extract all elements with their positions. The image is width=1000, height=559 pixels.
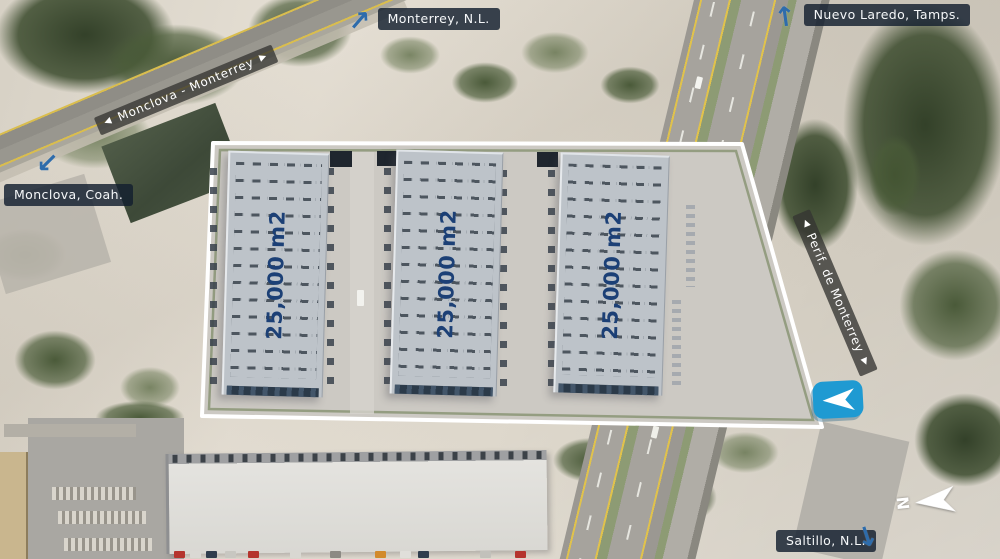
parking-row	[686, 205, 695, 287]
building-area-label: 25,000 m2	[262, 210, 290, 340]
navigation-arrow-icon	[817, 384, 858, 414]
destination-monterrey: ↗ Monterrey, N.L.	[348, 8, 500, 35]
dock-doors	[210, 168, 217, 388]
north-compass: N	[891, 476, 965, 527]
destination-monclova: Monclova, Coah.	[4, 184, 133, 206]
parking-row	[672, 300, 681, 390]
site-entrance	[330, 151, 352, 167]
triangle-right-icon: ▶	[859, 357, 870, 368]
triangle-right-icon: ▶	[258, 52, 269, 63]
aerial-site-map: 25,000 m2 25,000 m2 25,000 m2 ↗ Monterre…	[0, 0, 1000, 559]
building-area-label: 25,000 m2	[433, 209, 461, 339]
arrow-up-right-icon: ↗	[347, 7, 371, 36]
warehouse-building-2: 25,000 m2	[390, 150, 504, 397]
site-entrance	[537, 152, 558, 167]
warehouse-building-3: 25,000 m2	[553, 152, 669, 395]
destination-nuevo-laredo: ↑ Nuevo Laredo, Tamps.	[774, 4, 970, 31]
destination-label: Nuevo Laredo, Tamps.	[804, 4, 971, 26]
destination-label: Monterrey, N.L.	[378, 8, 500, 30]
building-area-label: 25,000 m2	[598, 210, 626, 340]
truck	[357, 290, 364, 306]
arrow-down-left-icon: ↙	[36, 150, 59, 177]
warehouse-building-1: 25,000 m2	[222, 151, 330, 398]
north-label: N	[893, 496, 913, 511]
site-entrance-marker	[812, 380, 864, 420]
triangle-left-icon: ◀	[103, 116, 114, 127]
central-drive	[350, 152, 374, 414]
triangle-left-icon: ◀	[800, 218, 811, 229]
arrow-up-icon: ↑	[772, 3, 798, 33]
north-arrow-icon	[914, 485, 957, 516]
site-entrance	[377, 151, 398, 166]
